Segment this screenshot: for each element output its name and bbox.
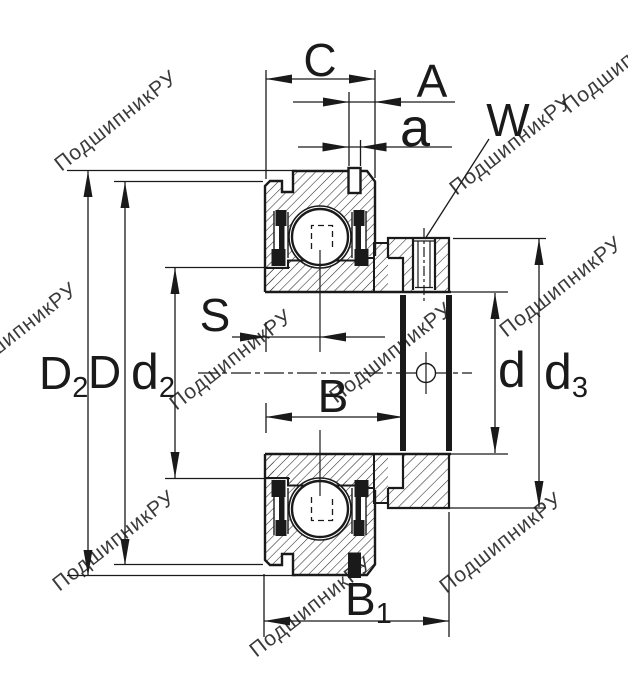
watermark-text: ПодшипникРУ: [50, 66, 182, 176]
dim-label-d3: d3: [544, 344, 588, 404]
dim-label-B: B: [318, 370, 349, 422]
leader-line-W: [425, 139, 489, 239]
lube-pin-top: [349, 168, 361, 193]
dim-label-S: S: [200, 289, 231, 341]
dim-label-a: a: [400, 98, 431, 158]
watermark-text: ПодшипникРУ: [48, 486, 180, 596]
dim-label-D2: D2: [39, 347, 88, 404]
locking-collar-bottom-section: [388, 454, 449, 508]
bearing-technical-drawing: ПодшипникРУ ПодшипникРУ ПодшипникРУ Подш…: [0, 0, 628, 676]
dim-label-d2: d2: [131, 344, 175, 404]
diagram-canvas: ПодшипникРУ ПодшипникРУ ПодшипникРУ Подш…: [0, 0, 628, 676]
watermark-text: ПодшипникРУ: [435, 488, 567, 598]
dim-label-B1: B1: [345, 573, 392, 630]
watermark-text: ПодшипникРУ: [165, 305, 297, 415]
watermark-text: ПодшипникРУ: [558, 8, 628, 118]
dim-label-D: D: [88, 346, 121, 398]
dim-label-W: W: [486, 94, 530, 146]
dim-label-C: C: [303, 34, 336, 86]
watermark-text: ПодшипникРУ: [495, 232, 627, 342]
dim-label-d: d: [498, 342, 526, 398]
